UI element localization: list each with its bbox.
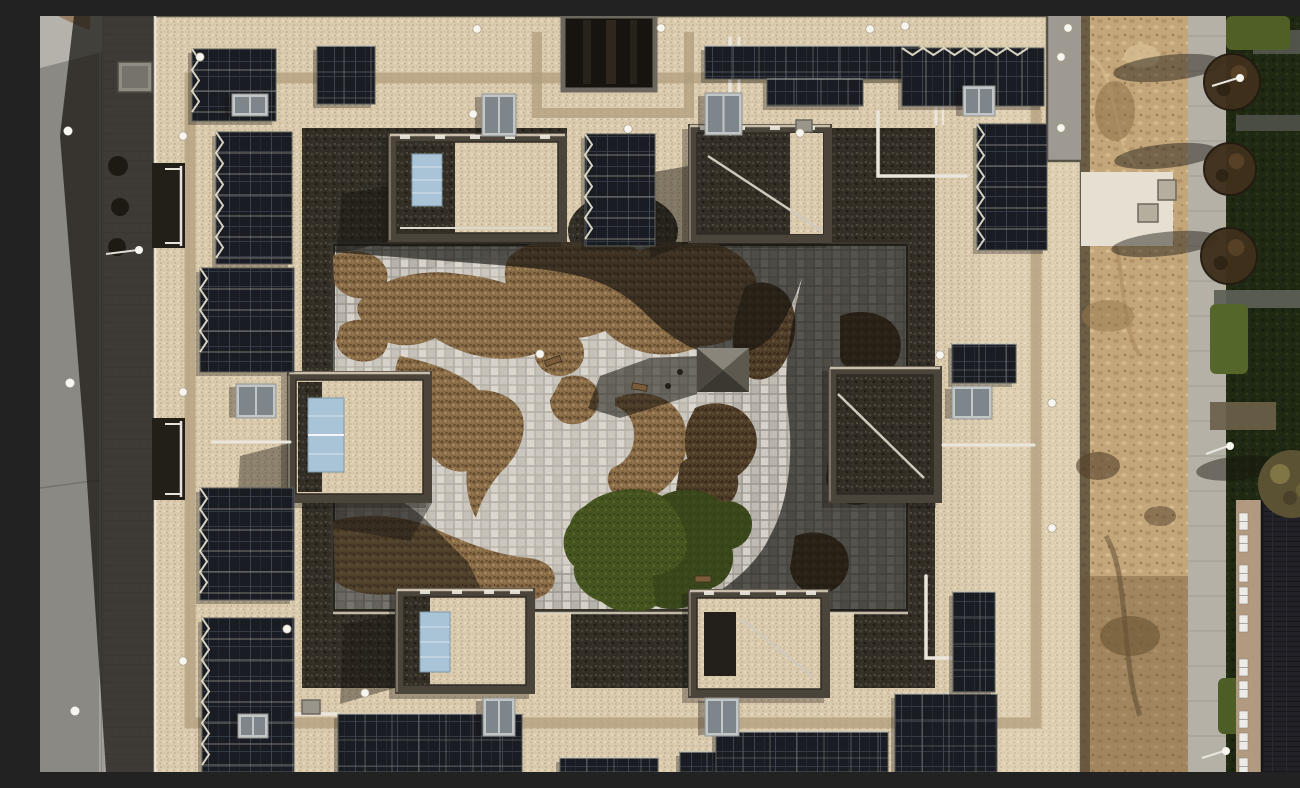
roof-anchor-dot: [473, 25, 481, 33]
roof-anchor-dot: [1064, 24, 1072, 32]
tree: [1204, 143, 1256, 195]
tree: [1201, 228, 1257, 284]
bush: [111, 198, 129, 216]
street-lamp: [64, 127, 73, 136]
array-panels: [705, 46, 919, 79]
skylight: [945, 386, 992, 419]
skylight: [956, 86, 995, 116]
tree-texture: [1216, 169, 1229, 182]
tower-interior: [837, 375, 933, 494]
roof-anchor-dot: [796, 129, 804, 137]
roof-anchor-dot: [179, 388, 187, 396]
roof-anchor-dot: [901, 22, 909, 30]
gravel-corridor: [830, 611, 854, 691]
array-panels: [317, 46, 375, 104]
array-panels: [200, 268, 294, 372]
roof-anchor-dot: [361, 689, 369, 697]
solar-array: [196, 488, 294, 604]
tree: [1204, 54, 1260, 110]
roof-anchor-dot: [1057, 124, 1065, 132]
roof-anchor-dot: [1048, 524, 1056, 532]
tree-crown: [1204, 54, 1260, 110]
solar-array: [949, 592, 995, 696]
roof-anchor-dot: [936, 351, 944, 359]
neighbour-window: [1239, 587, 1248, 604]
roof-anchor-dot: [1057, 53, 1065, 61]
skylight: [475, 94, 516, 136]
gravel-corridor: [535, 611, 571, 694]
solar-array: [581, 134, 655, 250]
dirt-patch: [1082, 300, 1134, 332]
balcony-box: [118, 62, 152, 92]
footpath-joints: [1188, 36, 1226, 736]
roof-anchor-dot: [1048, 399, 1056, 407]
street-lamp: [71, 707, 80, 716]
roof-anchor-dot: [179, 132, 187, 140]
bench: [695, 576, 711, 582]
solar-array: [556, 758, 658, 772]
dirt-patch: [1076, 452, 1120, 480]
solar-array: [763, 79, 863, 110]
solar-array: [891, 694, 997, 772]
bush: [108, 156, 128, 176]
array-panels: [953, 592, 995, 692]
balcony-recess: [152, 418, 185, 500]
roof-anchor-dot: [283, 625, 291, 633]
array-panels: [560, 758, 658, 772]
neighbour-window: [1239, 615, 1248, 632]
roof-anchor-dot: [624, 125, 632, 133]
array-panels: [216, 132, 292, 264]
solar-array: [712, 732, 888, 772]
solar-array: [701, 46, 919, 83]
roof-anchor-dot: [866, 25, 874, 33]
array-panels: [585, 134, 655, 246]
play-post: [677, 369, 683, 375]
dirt-patch: [1144, 506, 1176, 526]
neighbour-window: [1239, 711, 1248, 728]
tree-highlight: [1228, 239, 1245, 256]
skylight: [698, 93, 742, 135]
neighbour-window: [1239, 659, 1248, 676]
skylight: [476, 698, 515, 736]
surroundings-right: [1076, 16, 1300, 772]
paved-strip: [1236, 115, 1300, 131]
tree-crown: [1204, 143, 1256, 195]
array-panels: [202, 618, 294, 772]
roof-anchor-dot: [657, 24, 665, 32]
footpath: [1188, 16, 1226, 772]
gravel-strip: [790, 133, 823, 234]
sunlit-grass-patch: [1226, 16, 1290, 50]
window-frame: [1239, 758, 1248, 772]
skylight: [231, 714, 268, 739]
skylight: [229, 384, 276, 418]
neighbour-window: [1239, 565, 1248, 582]
tree-crown: [1201, 228, 1257, 284]
solar-array: [948, 344, 1016, 387]
neighbour-roof: [1262, 500, 1300, 772]
aerial-photo: [40, 16, 1300, 772]
paved-strip: [1210, 402, 1276, 430]
skylight: [225, 94, 268, 117]
dirt-patch: [1095, 81, 1135, 141]
balcony-recess: [152, 163, 185, 248]
roof-unit: [302, 700, 320, 714]
solar-array: [196, 268, 294, 376]
solar-thermal-collector: [420, 612, 450, 672]
tree-texture: [1214, 256, 1228, 270]
neighbour-window: [1239, 513, 1248, 530]
apartment-building-roof: [152, 16, 1081, 772]
roof-anchor-dot: [196, 53, 204, 61]
solar-array: [973, 124, 1047, 254]
tree-highlight: [1229, 153, 1245, 169]
array-panels: [767, 79, 863, 106]
solar-thermal-collector: [412, 154, 442, 206]
dirt-patch: [1100, 616, 1160, 656]
street-lamp: [66, 379, 75, 388]
solar-array: [212, 132, 292, 268]
solar-array: [198, 618, 294, 772]
roof-anchor-dot: [469, 110, 477, 118]
array-panels: [200, 488, 294, 600]
array-panels: [716, 732, 888, 772]
neighbour-window: [1239, 733, 1248, 750]
solar-thermal-collector: [308, 398, 344, 472]
neighbour-window: [1239, 535, 1248, 552]
aerial-photo-frame: Top-down drone view of a large square co…: [40, 16, 1300, 772]
dirt-shaded-lower: [1081, 576, 1188, 772]
skylight: [698, 698, 739, 736]
array-panels: [895, 694, 997, 772]
neighbour-window: [1239, 758, 1248, 772]
play-post: [665, 383, 671, 389]
roof-lightwell: [563, 16, 655, 90]
neighbour-window: [1239, 681, 1248, 698]
sunlit-grass-patch: [1210, 304, 1248, 374]
solar-array: [313, 46, 375, 108]
roof-anchor-dot: [179, 657, 187, 665]
dark-panel: [704, 612, 736, 676]
roof-anchor-dot: [536, 350, 544, 358]
street-left: [40, 16, 158, 772]
